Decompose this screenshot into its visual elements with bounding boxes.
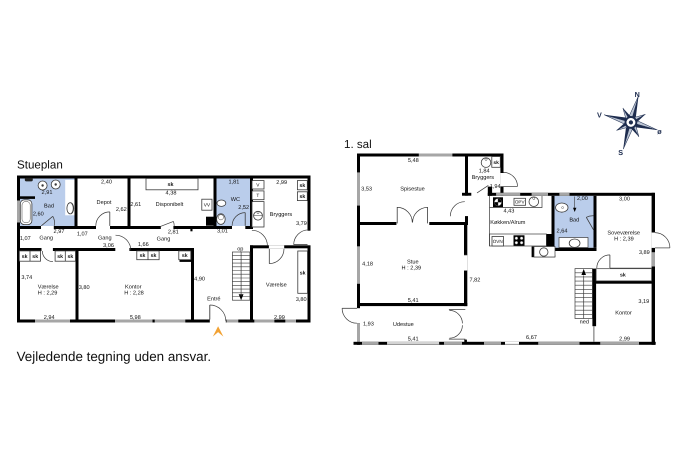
svg-text:5,98: 5,98: [130, 314, 141, 320]
svg-text:Værelse: Værelse: [266, 282, 287, 288]
svg-text:Depot: Depot: [97, 200, 112, 206]
svg-text:Stueplan: Stueplan: [17, 158, 63, 171]
svg-text:4,18: 4,18: [362, 261, 373, 267]
svg-text:sk: sk: [32, 254, 38, 260]
svg-text:7,82: 7,82: [469, 277, 480, 283]
svg-text:Spisestue: Spisestue: [400, 186, 425, 192]
svg-text:ned: ned: [580, 319, 589, 325]
svg-text:Gang: Gang: [157, 236, 171, 242]
svg-text:Entré: Entré: [207, 296, 220, 302]
svg-text:1,07: 1,07: [77, 231, 88, 237]
svg-text:sk: sk: [300, 183, 306, 189]
svg-text:T: T: [256, 193, 259, 199]
svg-text:1,66: 1,66: [138, 241, 149, 247]
svg-text:2,62: 2,62: [116, 207, 127, 213]
svg-text:sk: sk: [300, 270, 306, 276]
svg-text:OPV: OPV: [515, 200, 525, 205]
svg-text:3,80: 3,80: [296, 296, 307, 302]
svg-text:3,80: 3,80: [79, 284, 90, 290]
svg-text:4,38: 4,38: [166, 190, 177, 196]
svg-text:V: V: [256, 182, 260, 188]
svg-text:Gang: Gang: [39, 235, 53, 241]
svg-text:Kontor: Kontor: [615, 310, 632, 316]
svg-text:4,90: 4,90: [194, 276, 205, 282]
svg-text:2,64: 2,64: [557, 228, 568, 234]
svg-text:2,81: 2,81: [168, 229, 179, 235]
svg-text:2,99: 2,99: [274, 314, 285, 320]
svg-text:Bad: Bad: [44, 203, 54, 209]
svg-text:2,61: 2,61: [130, 202, 141, 208]
svg-text:Soveværelse: Soveværelse: [607, 230, 640, 236]
svg-text:Kontor: Kontor: [125, 284, 142, 290]
svg-text:1,93: 1,93: [363, 321, 374, 327]
svg-text:Værelse: Værelse: [38, 284, 59, 290]
svg-text:VV: VV: [204, 202, 211, 208]
svg-text:H : 2,29: H : 2,29: [38, 290, 58, 296]
svg-text:sk: sk: [620, 273, 626, 279]
svg-text:3,79: 3,79: [296, 220, 307, 226]
svg-text:1. sal: 1. sal: [344, 137, 372, 150]
svg-text:sk: sk: [493, 160, 499, 166]
svg-text:sk: sk: [57, 254, 63, 260]
svg-text:2,52: 2,52: [238, 205, 249, 211]
svg-text:2,99: 2,99: [276, 180, 287, 186]
svg-text:3,74: 3,74: [21, 275, 32, 281]
svg-text:sk: sk: [167, 181, 174, 187]
svg-text:V: V: [597, 111, 602, 119]
svg-text:3,06: 3,06: [103, 243, 114, 249]
svg-text:2,00: 2,00: [577, 196, 588, 202]
svg-text:Vejledende tegning uden ansvar: Vejledende tegning uden ansvar.: [17, 349, 211, 364]
svg-text:sk: sk: [151, 253, 157, 259]
svg-text:Disponibelt: Disponibelt: [156, 202, 184, 208]
svg-text:sk: sk: [140, 253, 146, 259]
svg-text:2,99: 2,99: [619, 336, 630, 342]
svg-text:H : 2,39: H : 2,39: [402, 265, 422, 271]
svg-text:Køkken/Alrum: Køkken/Alrum: [490, 219, 525, 225]
svg-text:Gang: Gang: [98, 235, 112, 241]
svg-text:Bryggers: Bryggers: [472, 175, 495, 181]
svg-text:Stue: Stue: [407, 259, 419, 265]
svg-text:2,40: 2,40: [101, 179, 112, 185]
svg-text:3,01: 3,01: [217, 228, 228, 234]
svg-text:Bad: Bad: [569, 217, 579, 223]
svg-text:Bryggers: Bryggers: [270, 211, 293, 217]
svg-text:2,60: 2,60: [33, 211, 44, 217]
svg-text:5,41: 5,41: [408, 336, 419, 342]
svg-text:1,84: 1,84: [479, 168, 490, 174]
svg-text:H : 2,28: H : 2,28: [124, 290, 144, 296]
svg-text:3,89: 3,89: [639, 249, 650, 255]
svg-text:4,43: 4,43: [503, 208, 514, 214]
svg-text:5,41: 5,41: [408, 297, 419, 303]
svg-text:sk: sk: [22, 254, 28, 260]
svg-text:op: op: [237, 246, 243, 252]
svg-text:OVN: OVN: [493, 239, 503, 244]
svg-text:2,97: 2,97: [54, 228, 65, 234]
svg-text:2,94: 2,94: [44, 314, 55, 320]
svg-text:ø: ø: [657, 128, 662, 136]
svg-text:N: N: [635, 91, 640, 99]
svg-text:sk: sk: [182, 253, 188, 259]
svg-text:5,48: 5,48: [408, 157, 419, 163]
svg-text:WC: WC: [231, 196, 240, 202]
svg-text:2,91: 2,91: [42, 189, 53, 195]
svg-text:1,94: 1,94: [490, 184, 501, 190]
svg-text:3,00: 3,00: [619, 196, 630, 202]
svg-text:S: S: [618, 149, 623, 157]
svg-text:1,07: 1,07: [20, 235, 31, 241]
svg-text:6,67: 6,67: [526, 334, 537, 340]
svg-text:3,19: 3,19: [638, 298, 649, 304]
svg-text:sk: sk: [68, 254, 74, 260]
svg-text:1,81: 1,81: [228, 179, 239, 185]
svg-text:3,53: 3,53: [361, 186, 372, 192]
svg-text:Udestue: Udestue: [393, 321, 414, 327]
svg-text:H : 2,39: H : 2,39: [614, 236, 634, 242]
svg-text:sk: sk: [300, 194, 306, 200]
